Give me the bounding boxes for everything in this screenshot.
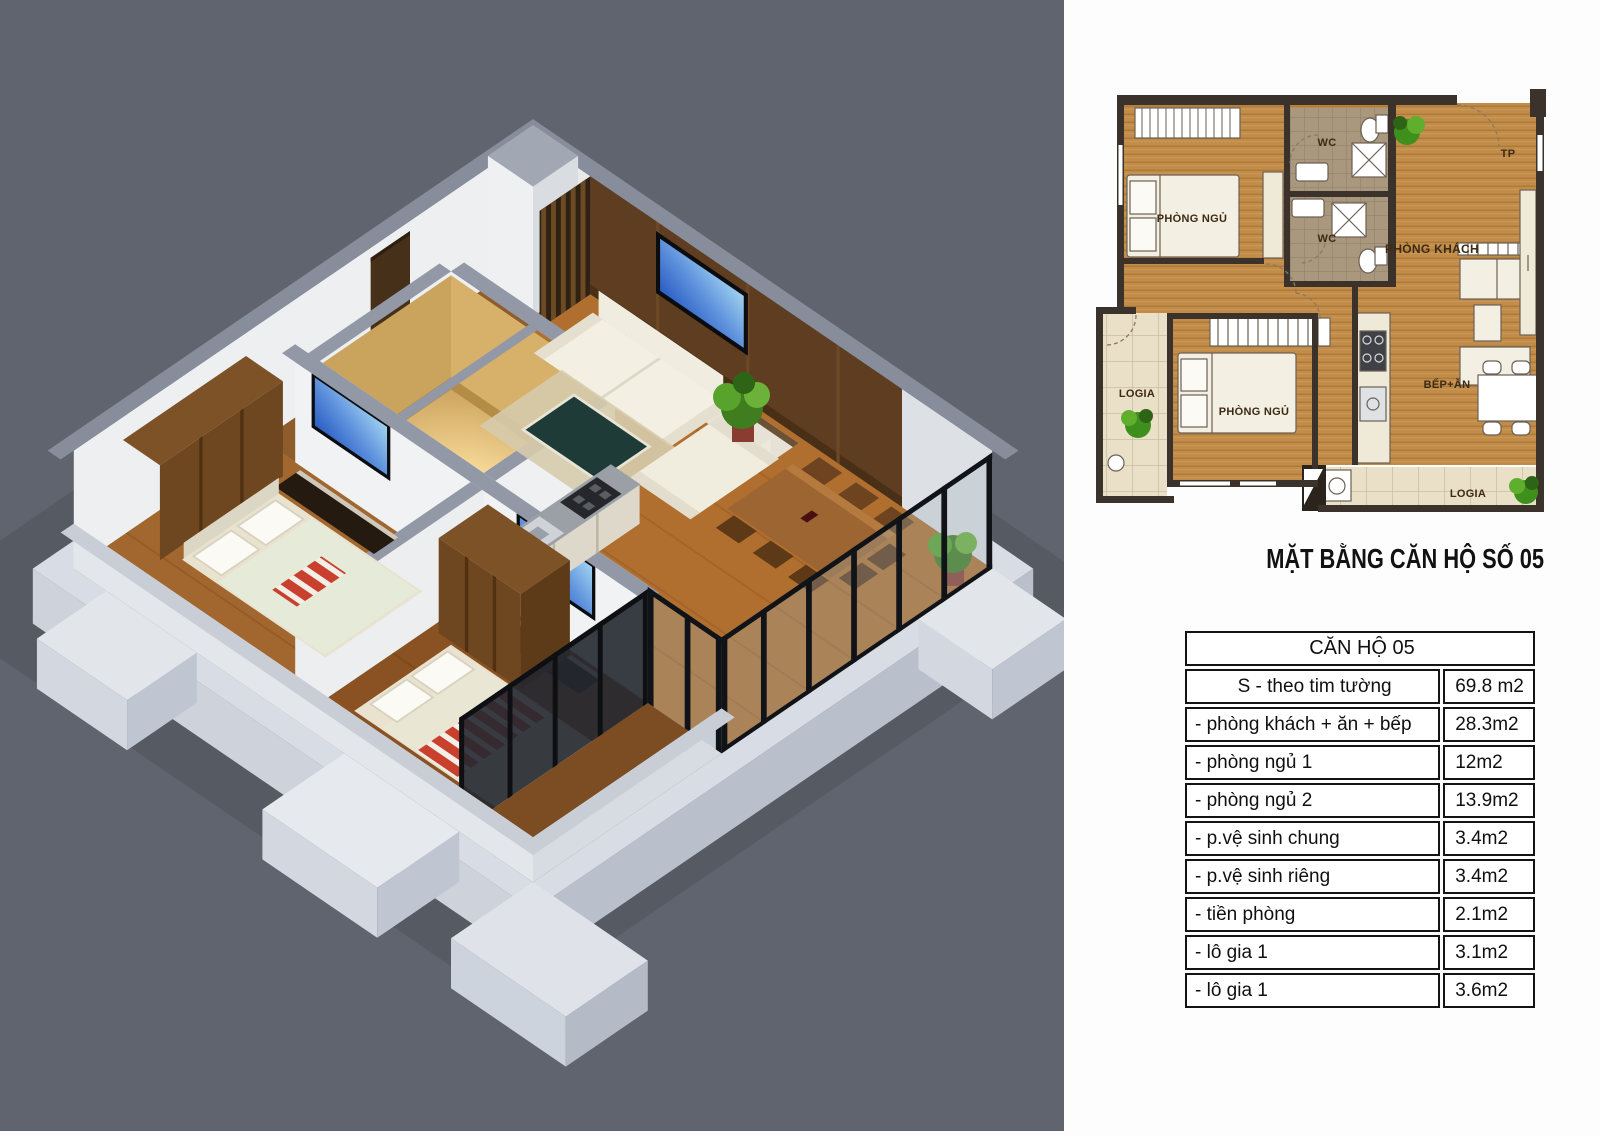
table-cell-value: 3.6m2 [1443, 973, 1535, 1008]
table-row: - p.vệ sinh riêng 3.4m2 [1185, 859, 1535, 894]
room-label-kitchen: BẾP+ĂN [1424, 378, 1471, 391]
table-cell-value: 3.1m2 [1443, 935, 1535, 970]
table-cell-value: 69.8 m2 [1443, 669, 1535, 704]
table-cell-value: 13.9m2 [1443, 783, 1535, 818]
table-cell-value: 12m2 [1443, 745, 1535, 780]
isometric-apartment-render [0, 0, 1064, 1131]
table-row: - p.vệ sinh chung 3.4m2 [1185, 821, 1535, 856]
table-cell-value: 3.4m2 [1443, 859, 1535, 894]
table-row: - lô gia 1 3.1m2 [1185, 935, 1535, 970]
table-row: - lô gia 1 3.6m2 [1185, 973, 1535, 1008]
table-cell-label: - p.vệ sinh chung [1185, 821, 1440, 856]
plan-title-text: MẶT BẰNG CĂN HỘ SỐ 05 [1266, 543, 1544, 575]
room-label-logia-bottom: LOGIA [1450, 488, 1486, 500]
table-cell-value: 28.3m2 [1443, 707, 1535, 742]
table-cell-value: 2.1m2 [1443, 897, 1535, 932]
table-cell-label: - phòng khách + ăn + bếp [1185, 707, 1440, 742]
room-label-wc-top: WC [1318, 137, 1337, 149]
room-label-entry: TP [1501, 148, 1516, 160]
table-cell-label: - p.vệ sinh riêng [1185, 859, 1440, 894]
room-label-wc-bottom: WC [1318, 233, 1337, 245]
table-cell-label: - lô gia 1 [1185, 935, 1440, 970]
floor-plan-2d: PHÒNG NGỦ WC WC TP PHÒNG KHÁCH LOGIA PHÒ… [1080, 75, 1550, 525]
render-panel [0, 0, 1064, 1131]
plan-panel: PHÒNG NGỦ WC WC TP PHÒNG KHÁCH LOGIA PHÒ… [1064, 0, 1600, 1131]
table-cell-label: - phòng ngủ 2 [1185, 783, 1440, 818]
table-row: - phòng ngủ 2 13.9m2 [1185, 783, 1535, 818]
table-row: S - theo tim tường 69.8 m2 [1185, 669, 1535, 704]
area-table: CĂN HỘ 05 S - theo tim tường 69.8 m2 - p… [1182, 628, 1538, 1011]
table-header: CĂN HỘ 05 [1185, 631, 1535, 666]
room-label-living: PHÒNG KHÁCH [1385, 241, 1479, 256]
plan-title: MẶT BẰNG CĂN HỘ SỐ 05 [1227, 543, 1527, 577]
table-cell-label: - tiền phòng [1185, 897, 1440, 932]
room-label-bedroom-bottom: PHÒNG NGỦ [1219, 405, 1290, 418]
plan-shaft [1302, 465, 1326, 511]
table-row: - phòng khách + ăn + bếp 28.3m2 [1185, 707, 1535, 742]
table-row: - tiền phòng 2.1m2 [1185, 897, 1535, 932]
table-header-row: CĂN HỘ 05 [1185, 631, 1535, 666]
table-cell-value: 3.4m2 [1443, 821, 1535, 856]
room-label-bedroom-top: PHÒNG NGỦ [1157, 212, 1228, 225]
table-row: - phòng ngủ 1 12m2 [1185, 745, 1535, 780]
table-cell-label: S - theo tim tường [1185, 669, 1440, 704]
table-cell-label: - phòng ngủ 1 [1185, 745, 1440, 780]
room-label-logia-left: LOGIA [1119, 388, 1155, 400]
page: { "title": "MẶT BẰNG CĂN HỘ SỐ 05", "flo… [0, 0, 1600, 1131]
table-cell-label: - lô gia 1 [1185, 973, 1440, 1008]
